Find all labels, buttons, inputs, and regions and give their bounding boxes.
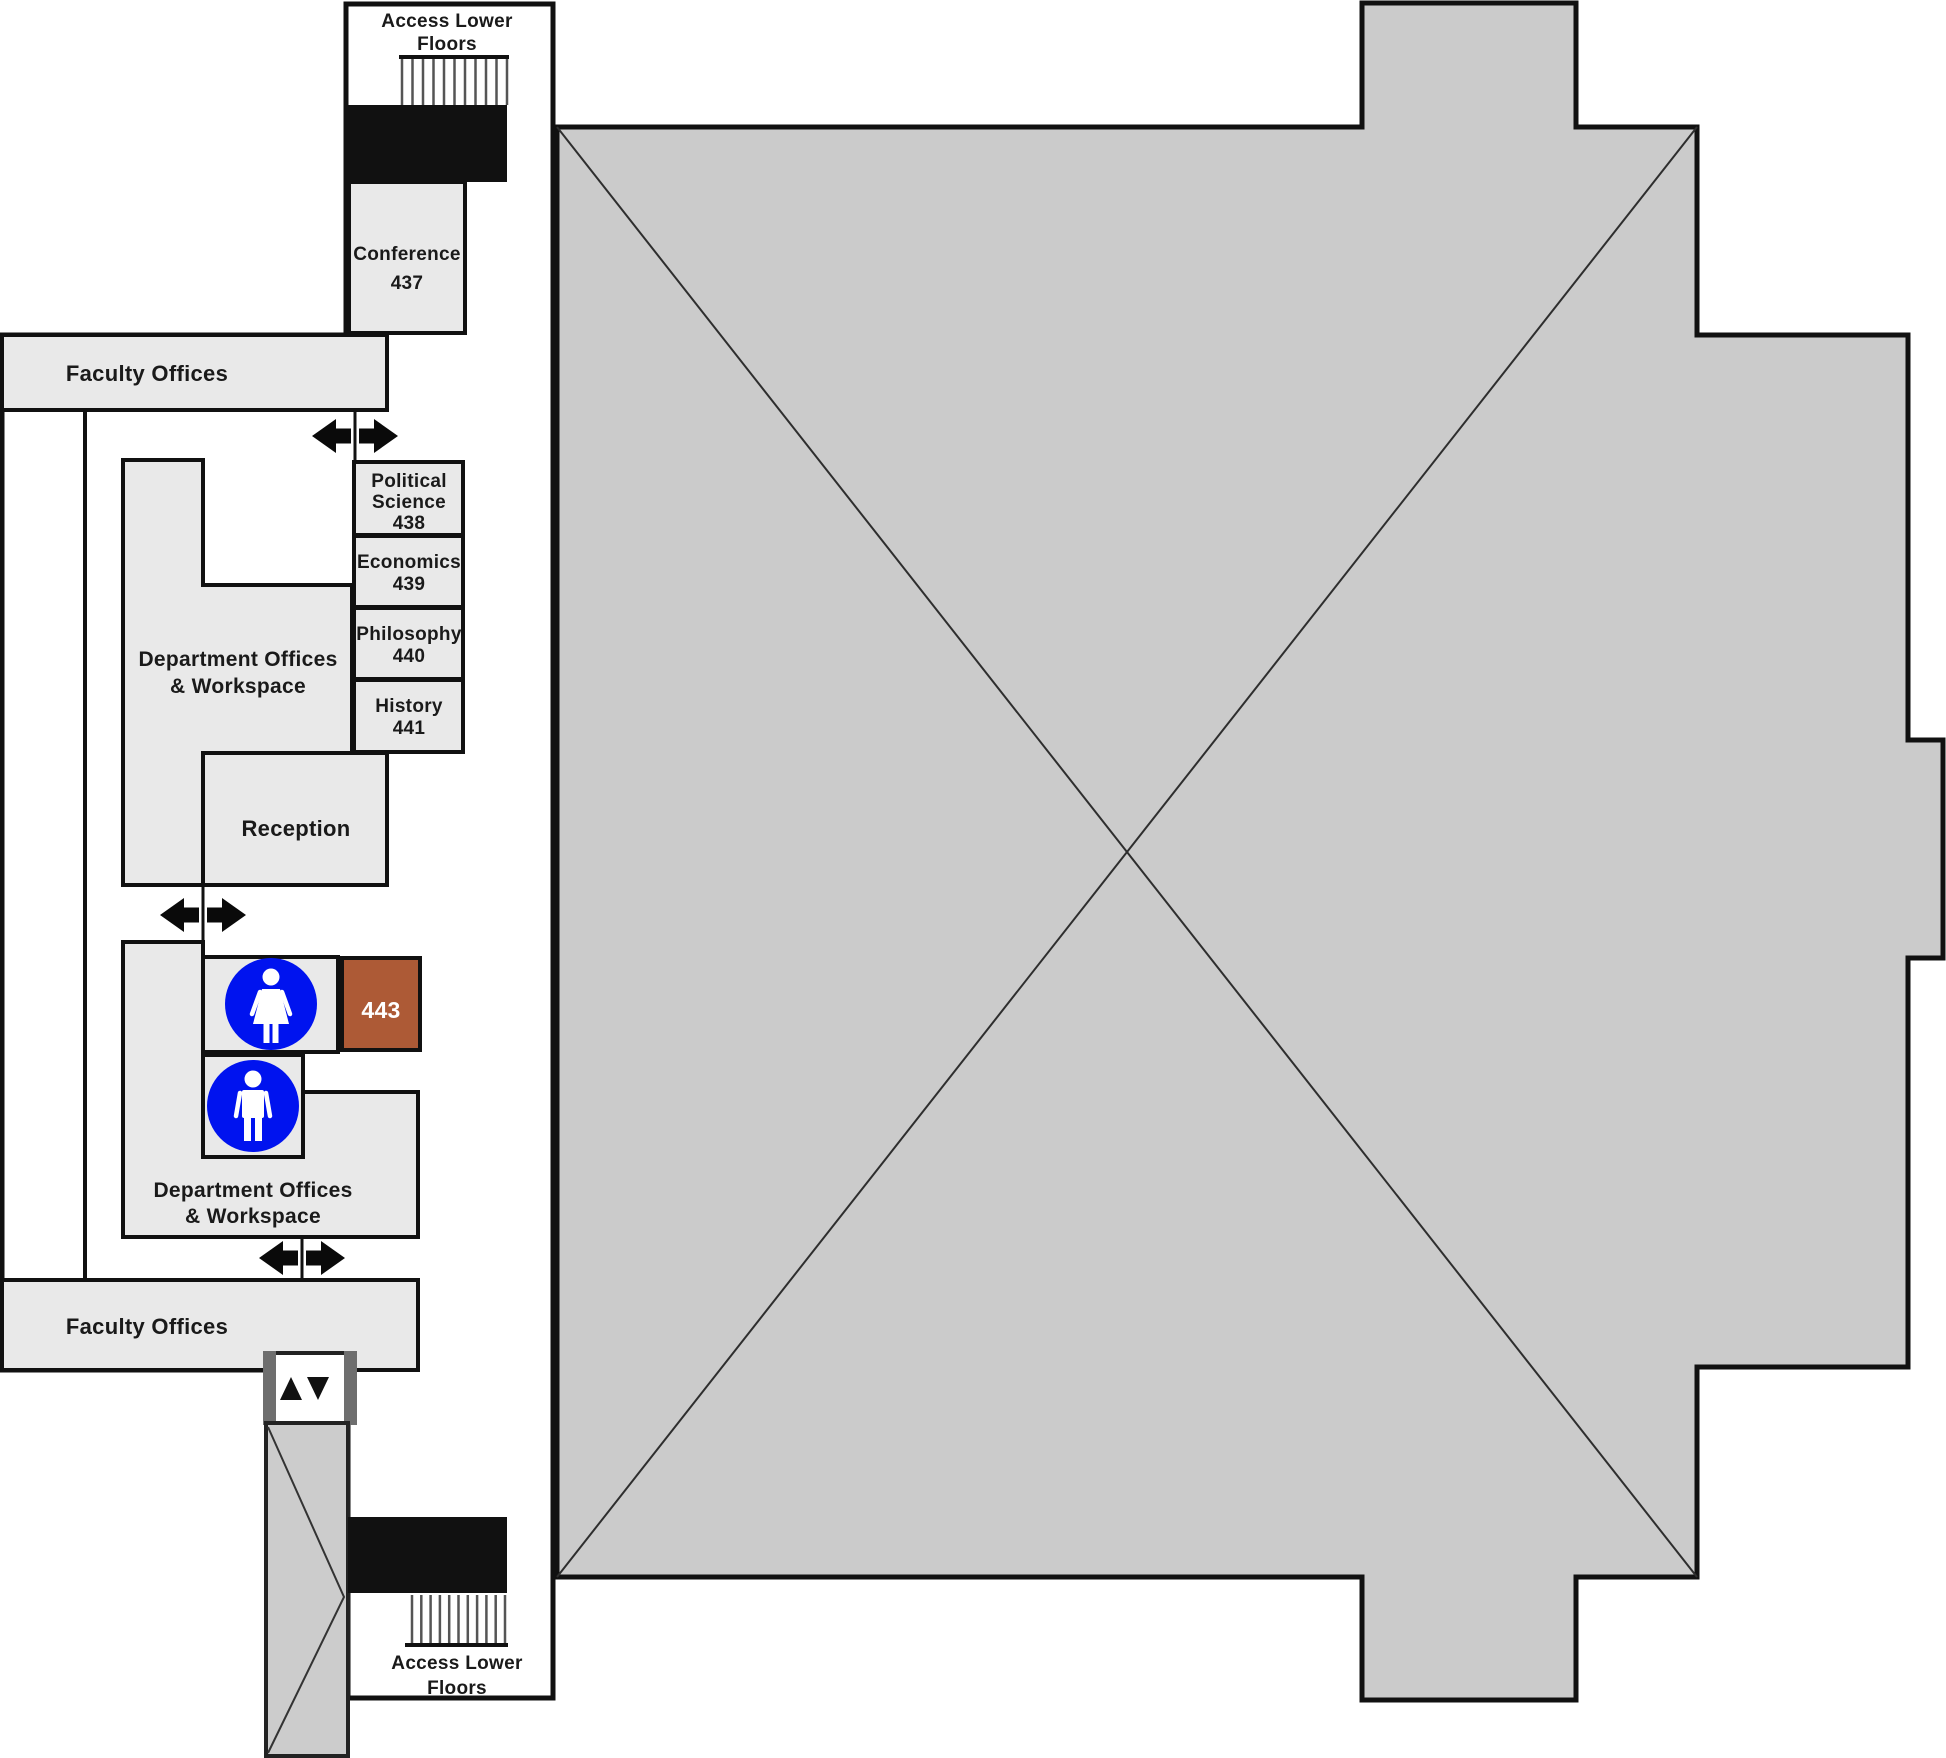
dept-upper-label-2: & Workspace <box>170 675 306 698</box>
political-science-number: 438 <box>393 513 426 534</box>
room-443: 443 <box>342 958 420 1050</box>
dept-lower-label-1: Department Offices <box>153 1179 352 1202</box>
stairs-top-label-2: Floors <box>417 34 477 55</box>
conference-number: 437 <box>391 273 424 294</box>
stair-landing-bottom <box>348 1517 507 1593</box>
history-label: History <box>375 696 443 717</box>
room-philosophy-440: Philosophy 440 <box>354 608 463 679</box>
room-faculty-offices-top: Faculty Offices <box>2 335 387 410</box>
economics-number: 439 <box>393 574 426 595</box>
dept-upper-label-1: Department Offices <box>138 648 337 671</box>
men-restroom-icon <box>207 1060 299 1152</box>
room-womens-restroom <box>203 957 338 1052</box>
stairs-bottom-label-1: Access Lower <box>391 1653 523 1674</box>
floor-plan: Access Lower Floors Conference 437 Facul… <box>0 0 1946 1758</box>
economics-label: Economics <box>357 552 461 573</box>
stair-landing-top <box>346 105 507 182</box>
political-science-label-2: Science <box>372 492 446 513</box>
conference-label: Conference <box>353 244 461 265</box>
elevator <box>263 1351 357 1425</box>
stairs-bottom-label-2: Floors <box>427 1678 487 1699</box>
room-mens-restroom <box>203 1055 303 1157</box>
room-economics-439: Economics 439 <box>354 536 463 607</box>
elevator-shaft <box>266 1423 348 1756</box>
dept-lower-label-2: & Workspace <box>185 1205 321 1228</box>
atrium-outline <box>557 3 1943 1700</box>
room-reception: Reception <box>203 753 387 885</box>
philosophy-number: 440 <box>393 646 426 667</box>
room-political-science-438: Political Science 438 <box>354 462 463 535</box>
stairs-top-label-1: Access Lower <box>381 11 513 32</box>
faculty-bottom-label: Faculty Offices <box>66 1314 228 1339</box>
women-restroom-icon <box>225 958 317 1050</box>
open-atrium-area <box>557 3 1943 1700</box>
elevator-door-right <box>344 1351 357 1425</box>
room-history-441: History 441 <box>354 680 463 752</box>
political-science-label-1: Political <box>371 471 447 492</box>
faculty-top-label: Faculty Offices <box>66 361 228 386</box>
floor-plan-canvas: Access Lower Floors Conference 437 Facul… <box>0 0 1946 1758</box>
philosophy-label: Philosophy <box>356 624 462 645</box>
room-443-number: 443 <box>361 997 400 1023</box>
history-number: 441 <box>393 718 426 739</box>
reception-label: Reception <box>241 816 350 841</box>
room-conference-437: Conference 437 <box>349 182 465 333</box>
elevator-door-left <box>263 1351 276 1425</box>
